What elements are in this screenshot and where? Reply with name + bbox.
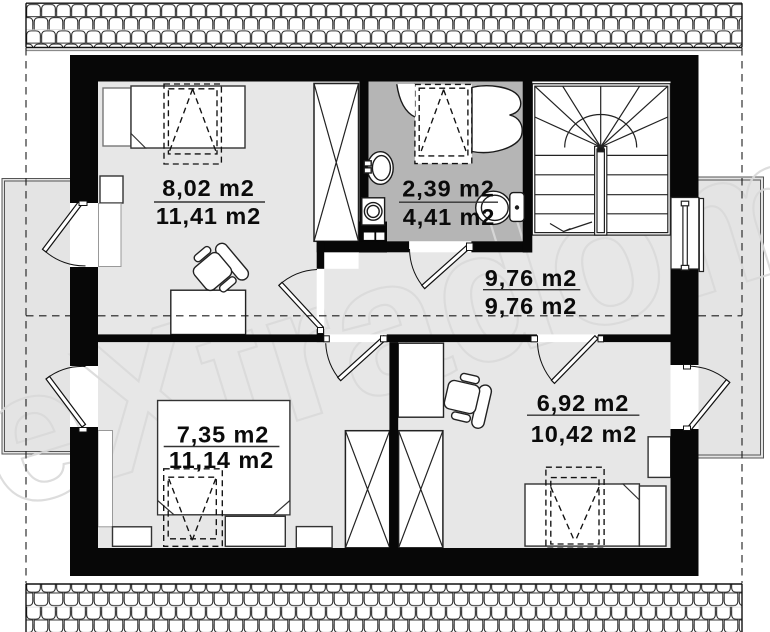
svg-text:8,02 m2: 8,02 m2 (162, 175, 255, 201)
svg-text:7,35 m2: 7,35 m2 (177, 422, 270, 448)
svg-text:6,92 m2: 6,92 m2 (537, 390, 630, 416)
svg-text:11,14 m2: 11,14 m2 (169, 447, 274, 473)
svg-text:10,42 m2: 10,42 m2 (531, 421, 638, 447)
svg-text:2,39 m2: 2,39 m2 (402, 176, 495, 202)
svg-text:9,76 m2: 9,76 m2 (485, 265, 578, 291)
svg-text:4,41 m2: 4,41 m2 (403, 204, 496, 230)
svg-text:9,76 m2: 9,76 m2 (485, 293, 578, 319)
svg-text:11,41 m2: 11,41 m2 (156, 203, 261, 229)
